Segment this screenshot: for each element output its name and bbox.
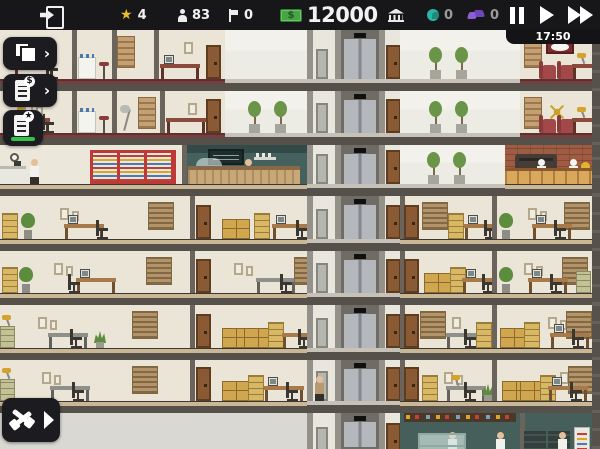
chair [68, 274, 81, 293]
cab2 [576, 271, 591, 293]
handshake-icon [467, 9, 485, 21]
basement2-room[interactable] [520, 413, 592, 449]
build-menu-button[interactable] [2, 398, 60, 442]
door [404, 314, 419, 348]
bank-button[interactable] [388, 0, 404, 30]
wall [492, 196, 497, 239]
doorg [316, 427, 328, 449]
doorg [316, 318, 328, 348]
core-room[interactable] [307, 145, 400, 196]
door [196, 205, 211, 239]
population-value: 83 [192, 8, 210, 23]
boxes [424, 273, 452, 293]
wallcol-room [592, 360, 600, 413]
shelfstrip [404, 413, 516, 422]
frame [452, 317, 461, 329]
pc [466, 269, 476, 278]
layers-copy-icon [16, 44, 37, 63]
frame2 [246, 266, 253, 276]
star-icon [120, 8, 133, 22]
person [28, 159, 40, 184]
dentist-room[interactable] [520, 91, 592, 145]
floor-slab [307, 348, 400, 360]
lamp [450, 375, 462, 386]
tree [247, 101, 262, 133]
chair [464, 382, 477, 401]
door [386, 99, 400, 133]
wallcol-room [592, 251, 600, 305]
wall [190, 360, 195, 401]
desk [76, 278, 116, 293]
cab [476, 322, 492, 348]
floor-slab [307, 79, 400, 91]
office-room[interactable] [0, 251, 190, 305]
pc [554, 324, 564, 333]
blinds [420, 311, 446, 339]
door [196, 367, 211, 401]
wallcol-room [592, 305, 600, 360]
basement-room[interactable] [400, 413, 520, 449]
core-room[interactable] [307, 251, 400, 305]
floor-slab [0, 184, 182, 196]
cash-bill-icon [280, 9, 302, 22]
exit-menu-button[interactable] [40, 0, 64, 30]
lamp2 [1, 368, 13, 379]
cafe-room[interactable] [182, 145, 307, 196]
floor-slab [492, 401, 592, 413]
floor-slab [307, 184, 400, 196]
corewall [379, 413, 385, 449]
chair [296, 220, 307, 239]
cab [254, 213, 270, 239]
doorg [316, 49, 328, 79]
door [386, 259, 400, 293]
floor-slab [400, 348, 492, 360]
floor-slab [190, 293, 307, 305]
fast-forward-icon [568, 6, 593, 24]
population-stat: 83 [178, 0, 210, 30]
chair [550, 274, 563, 293]
floor-slab [307, 401, 400, 413]
office-room[interactable] [0, 196, 190, 251]
culture-value: 0 [444, 8, 453, 23]
chair [554, 220, 567, 239]
floor-slab [400, 133, 520, 145]
deskm [572, 64, 592, 79]
star-badge-icon: ★ [23, 111, 34, 122]
cupshelf [254, 157, 276, 160]
boxes [222, 381, 250, 401]
deskm [160, 64, 200, 79]
floor-slab [400, 184, 505, 196]
cab [422, 375, 438, 401]
chair [572, 329, 585, 348]
frame [188, 103, 197, 115]
pause-icon [510, 7, 524, 24]
plant [498, 213, 514, 239]
tree [454, 47, 469, 79]
office-room[interactable] [492, 251, 592, 305]
dollar-badge-icon: $ [24, 76, 35, 87]
office-room[interactable] [400, 305, 492, 360]
door [386, 314, 400, 348]
move-in-stat: 0 [228, 0, 253, 30]
move-in-flag-icon [228, 9, 239, 22]
globe-icon [427, 9, 439, 21]
rating-value: 4 [138, 8, 147, 23]
floor-slab [307, 293, 400, 305]
cart [78, 57, 96, 79]
door [196, 314, 211, 348]
blinds [148, 202, 174, 230]
eshaft[interactable] [341, 413, 379, 449]
cab [2, 213, 18, 239]
wall [154, 30, 159, 79]
pc [164, 55, 174, 64]
play-icon [540, 6, 554, 24]
empty-room[interactable] [400, 145, 505, 196]
floor-slab [400, 293, 492, 305]
floor-slab [400, 79, 520, 91]
shelfred [90, 150, 176, 184]
tree [426, 152, 441, 184]
stool [99, 116, 109, 133]
chevron-right-icon [44, 46, 50, 61]
floor-slab [307, 239, 400, 251]
aloe [482, 384, 492, 401]
wall [112, 91, 117, 133]
cab [248, 375, 264, 401]
wall [72, 30, 77, 79]
deskm [572, 118, 592, 133]
chair [72, 382, 85, 401]
cart [78, 111, 96, 133]
chair [484, 220, 492, 239]
boxes [222, 219, 250, 239]
office-room[interactable] [492, 360, 592, 413]
tree [454, 101, 469, 133]
floor-slab [307, 133, 400, 145]
chair [286, 382, 299, 401]
building-cross-section[interactable] [0, 0, 600, 449]
counterB [505, 168, 592, 184]
wall [160, 91, 165, 133]
cash-stat: 12000 [280, 0, 378, 30]
exit-door-icon [40, 6, 64, 25]
wall [492, 251, 497, 293]
empty-room[interactable] [225, 30, 307, 91]
door [386, 367, 400, 401]
darkshelf [524, 431, 546, 449]
blinds [422, 202, 448, 230]
pc [536, 215, 546, 224]
frame [234, 263, 243, 275]
lease-star-icon: ★ [14, 115, 29, 136]
core-room[interactable] [307, 30, 400, 91]
game-viewport: 4 83 0 12000 0 0 [0, 0, 600, 449]
blinds [146, 257, 172, 285]
floor-slab [492, 239, 592, 251]
office-room[interactable] [0, 305, 190, 360]
counterS [0, 166, 26, 184]
wall [492, 305, 497, 348]
floor-slab [492, 293, 592, 305]
wallcol-room [592, 413, 600, 449]
core-room[interactable] [307, 305, 400, 360]
aloe [94, 331, 106, 348]
floors-panel-button[interactable] [3, 37, 57, 70]
office-room[interactable] [400, 251, 492, 305]
wall [190, 251, 195, 293]
active-indicator [11, 137, 35, 141]
deals-value: 0 [490, 8, 499, 23]
office-room[interactable] [400, 196, 492, 251]
door [386, 45, 400, 79]
bank-icon [388, 9, 404, 22]
rack [117, 36, 135, 68]
play-button[interactable] [540, 0, 554, 30]
core-room[interactable] [307, 196, 400, 251]
culture-stat: 0 [427, 0, 453, 30]
blinds [132, 366, 158, 394]
rack [138, 97, 156, 129]
door [386, 423, 400, 449]
pc [552, 377, 562, 386]
person [556, 432, 568, 449]
empty-room[interactable] [225, 91, 307, 145]
deskm [166, 118, 206, 133]
floor-slab [505, 184, 592, 196]
floor-slab [190, 348, 307, 360]
leases-panel-button[interactable]: ★ [3, 110, 43, 146]
store-room[interactable] [0, 145, 182, 196]
door [404, 259, 419, 293]
cab [2, 267, 18, 293]
cab [524, 322, 540, 348]
pause-button[interactable] [510, 0, 524, 30]
clock-panel: 17:50 [506, 28, 600, 44]
floor-slab [225, 79, 307, 91]
top-bar: 4 83 0 12000 0 0 [0, 0, 600, 30]
stool [99, 62, 109, 79]
chair [298, 329, 307, 348]
xray [118, 105, 138, 133]
frame [54, 263, 63, 275]
floor-slab [492, 348, 592, 360]
frame2 [50, 320, 57, 330]
floor-slab [190, 401, 307, 413]
floor-slab [400, 401, 492, 413]
blinds [132, 311, 158, 339]
deals-stat: 0 [467, 0, 499, 30]
tree [428, 101, 443, 133]
chair [280, 274, 293, 293]
move-in-value: 0 [244, 8, 253, 23]
pc [532, 269, 542, 278]
plant [20, 213, 36, 239]
chair [482, 274, 492, 293]
person [494, 432, 506, 449]
frame [184, 42, 193, 54]
lamp [576, 107, 588, 118]
office-room[interactable] [492, 196, 592, 251]
pc [68, 215, 78, 224]
floor-slab [190, 239, 307, 251]
floor-slab [182, 184, 307, 196]
office-room[interactable] [190, 360, 307, 413]
door [386, 205, 400, 239]
counterC [188, 166, 300, 184]
fast-forward-button[interactable] [568, 0, 593, 30]
core-room[interactable] [307, 91, 400, 145]
chair [42, 114, 55, 133]
plant [498, 267, 514, 293]
wall [190, 196, 195, 239]
floor-slab [0, 239, 190, 251]
core-room[interactable] [307, 360, 400, 413]
case [418, 433, 466, 449]
floor-slab [0, 348, 190, 360]
core-room[interactable] [307, 413, 400, 449]
office-room[interactable] [190, 251, 307, 305]
empty-room[interactable] [400, 91, 520, 145]
cab [448, 213, 464, 239]
chair [570, 382, 583, 401]
game-time: 17:50 [535, 30, 570, 43]
lamp2 [1, 315, 13, 326]
blinds [294, 257, 307, 285]
door [196, 259, 211, 293]
door [404, 367, 419, 401]
wall [190, 305, 195, 348]
finances-panel-button[interactable]: $ [3, 74, 57, 107]
rating-stat: 4 [120, 0, 147, 30]
person-icon [178, 9, 187, 22]
frame [42, 372, 51, 384]
corewall [307, 413, 313, 449]
doorg [316, 103, 328, 133]
office-room[interactable] [400, 360, 492, 413]
tree [452, 152, 467, 184]
chevron-right-icon [44, 83, 50, 98]
floor-slab [520, 79, 592, 91]
floor-slab [0, 293, 190, 305]
doorg [316, 154, 328, 184]
empty-room[interactable] [400, 30, 520, 91]
pc [276, 215, 286, 224]
frame [38, 317, 47, 329]
redchair [542, 119, 556, 133]
floor-slab [400, 239, 492, 251]
chair [96, 220, 109, 239]
door [386, 150, 400, 184]
person [313, 376, 325, 401]
lamp [576, 53, 588, 64]
pc [80, 269, 90, 278]
tree [273, 101, 288, 133]
frame2 [54, 375, 61, 385]
doorg [316, 263, 328, 293]
plant [18, 267, 34, 293]
door [206, 45, 221, 79]
bakery-room[interactable] [505, 145, 592, 196]
expand-arrow-icon [44, 411, 54, 429]
door [206, 99, 221, 133]
wall [72, 91, 77, 133]
office-room[interactable] [190, 305, 307, 360]
doorg [316, 209, 328, 239]
wallcol-room [592, 196, 600, 251]
wall [182, 145, 187, 184]
cash-value: 12000 [307, 3, 378, 27]
wall [492, 360, 497, 401]
pc [268, 377, 278, 386]
tree [428, 47, 443, 79]
office-room[interactable] [190, 196, 307, 251]
invoice-dollar-icon: $ [15, 80, 30, 101]
chair [70, 329, 83, 348]
vending [574, 427, 590, 449]
floor-slab [225, 133, 307, 145]
cab2 [0, 326, 15, 348]
pc [468, 215, 478, 224]
wallcol-room [592, 145, 600, 196]
redchair [542, 65, 556, 79]
floor-slab [520, 133, 592, 145]
office-room[interactable] [492, 305, 592, 360]
door [404, 205, 419, 239]
wallcol-room [592, 91, 600, 145]
